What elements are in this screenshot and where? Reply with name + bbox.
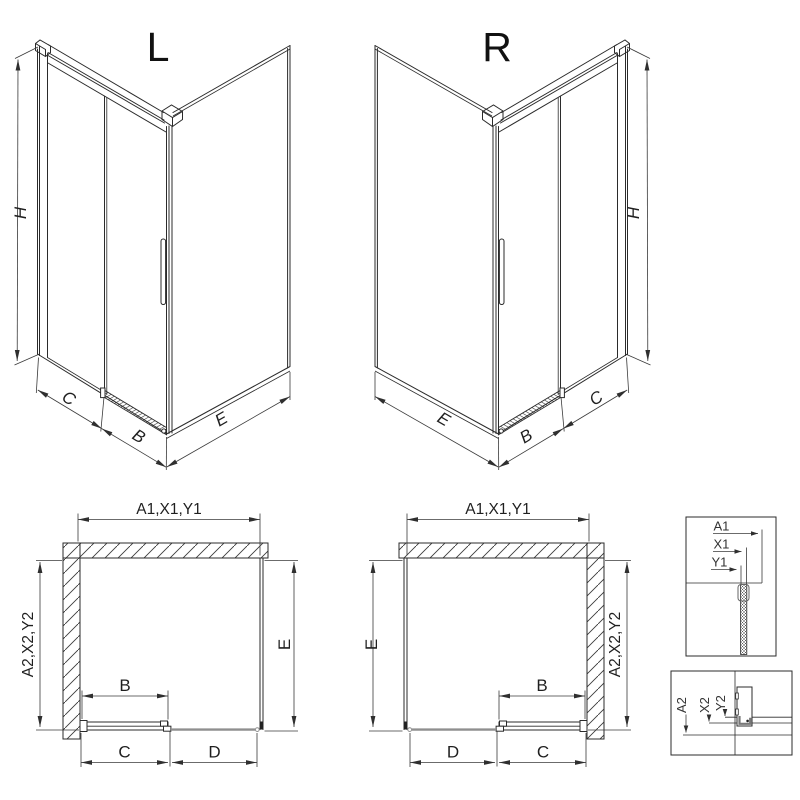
iso-enclosure-geometry-mirrored — [375, 40, 651, 470]
dim-label-h: H — [624, 206, 643, 219]
glass-section — [741, 585, 747, 655]
dim-label-d: D — [208, 743, 220, 762]
dim-label-c: C — [586, 387, 607, 410]
detail-label-y2: Y2 — [713, 695, 728, 711]
detail-label-x1: X1 — [714, 537, 730, 552]
dim-label-a2x2y2: A2,X2,Y2 — [20, 612, 37, 678]
dim-label-e: E — [362, 639, 381, 650]
dim-label-c: C — [59, 387, 80, 410]
dim-label-e: E — [212, 408, 232, 430]
variant-label-left: L — [147, 24, 170, 70]
dim-label-a1x1y1: A1,X1,Y1 — [465, 501, 531, 518]
dim-label-h: H — [11, 206, 30, 219]
dim-label-e: E — [275, 639, 294, 650]
dim-label-b: B — [129, 425, 149, 447]
dim-label-a1x1y1: A1,X1,Y1 — [136, 501, 202, 518]
dim-label-e: E — [434, 408, 454, 430]
threshold-rail — [103, 389, 167, 435]
plan-right-top-wall-hatch — [399, 543, 604, 558]
plan-right-side-wall-hatch — [587, 558, 604, 739]
dim-label-b: B — [516, 425, 536, 447]
plan-left-top-wall-hatch — [63, 543, 268, 558]
technical-drawing: L H C B E R H C B E A1,X1,Y1 A2,X2,Y2 E … — [0, 0, 800, 800]
plan-right-labels: A1,X1,Y1 A2,X2,Y2 E B D C — [362, 501, 624, 762]
dim-label-b: B — [536, 676, 547, 695]
dim-label-a2x2y2: A2,X2,Y2 — [607, 612, 624, 678]
detail-label-a1: A1 — [714, 519, 730, 534]
door-handle — [161, 239, 166, 305]
detail-width-box — [686, 517, 776, 656]
plan-left-side-wall-hatch — [63, 558, 80, 739]
dim-label-b: B — [119, 676, 130, 695]
dim-label-c: C — [118, 743, 130, 762]
detail-label-x2: X2 — [697, 697, 712, 713]
dim-label-d: D — [447, 743, 459, 762]
detail-labels: A1 X1 Y1 A2 X2 Y2 — [674, 519, 729, 714]
iso-enclosure-geometry — [15, 40, 291, 470]
dim-label-c: C — [537, 743, 549, 762]
detail-label-y1: Y1 — [712, 555, 728, 570]
variant-label-right: R — [482, 24, 512, 70]
detail-label-a2: A2 — [674, 697, 689, 713]
detail-depth-box — [671, 671, 792, 755]
iso-right-labels: R H C B E — [434, 24, 643, 447]
